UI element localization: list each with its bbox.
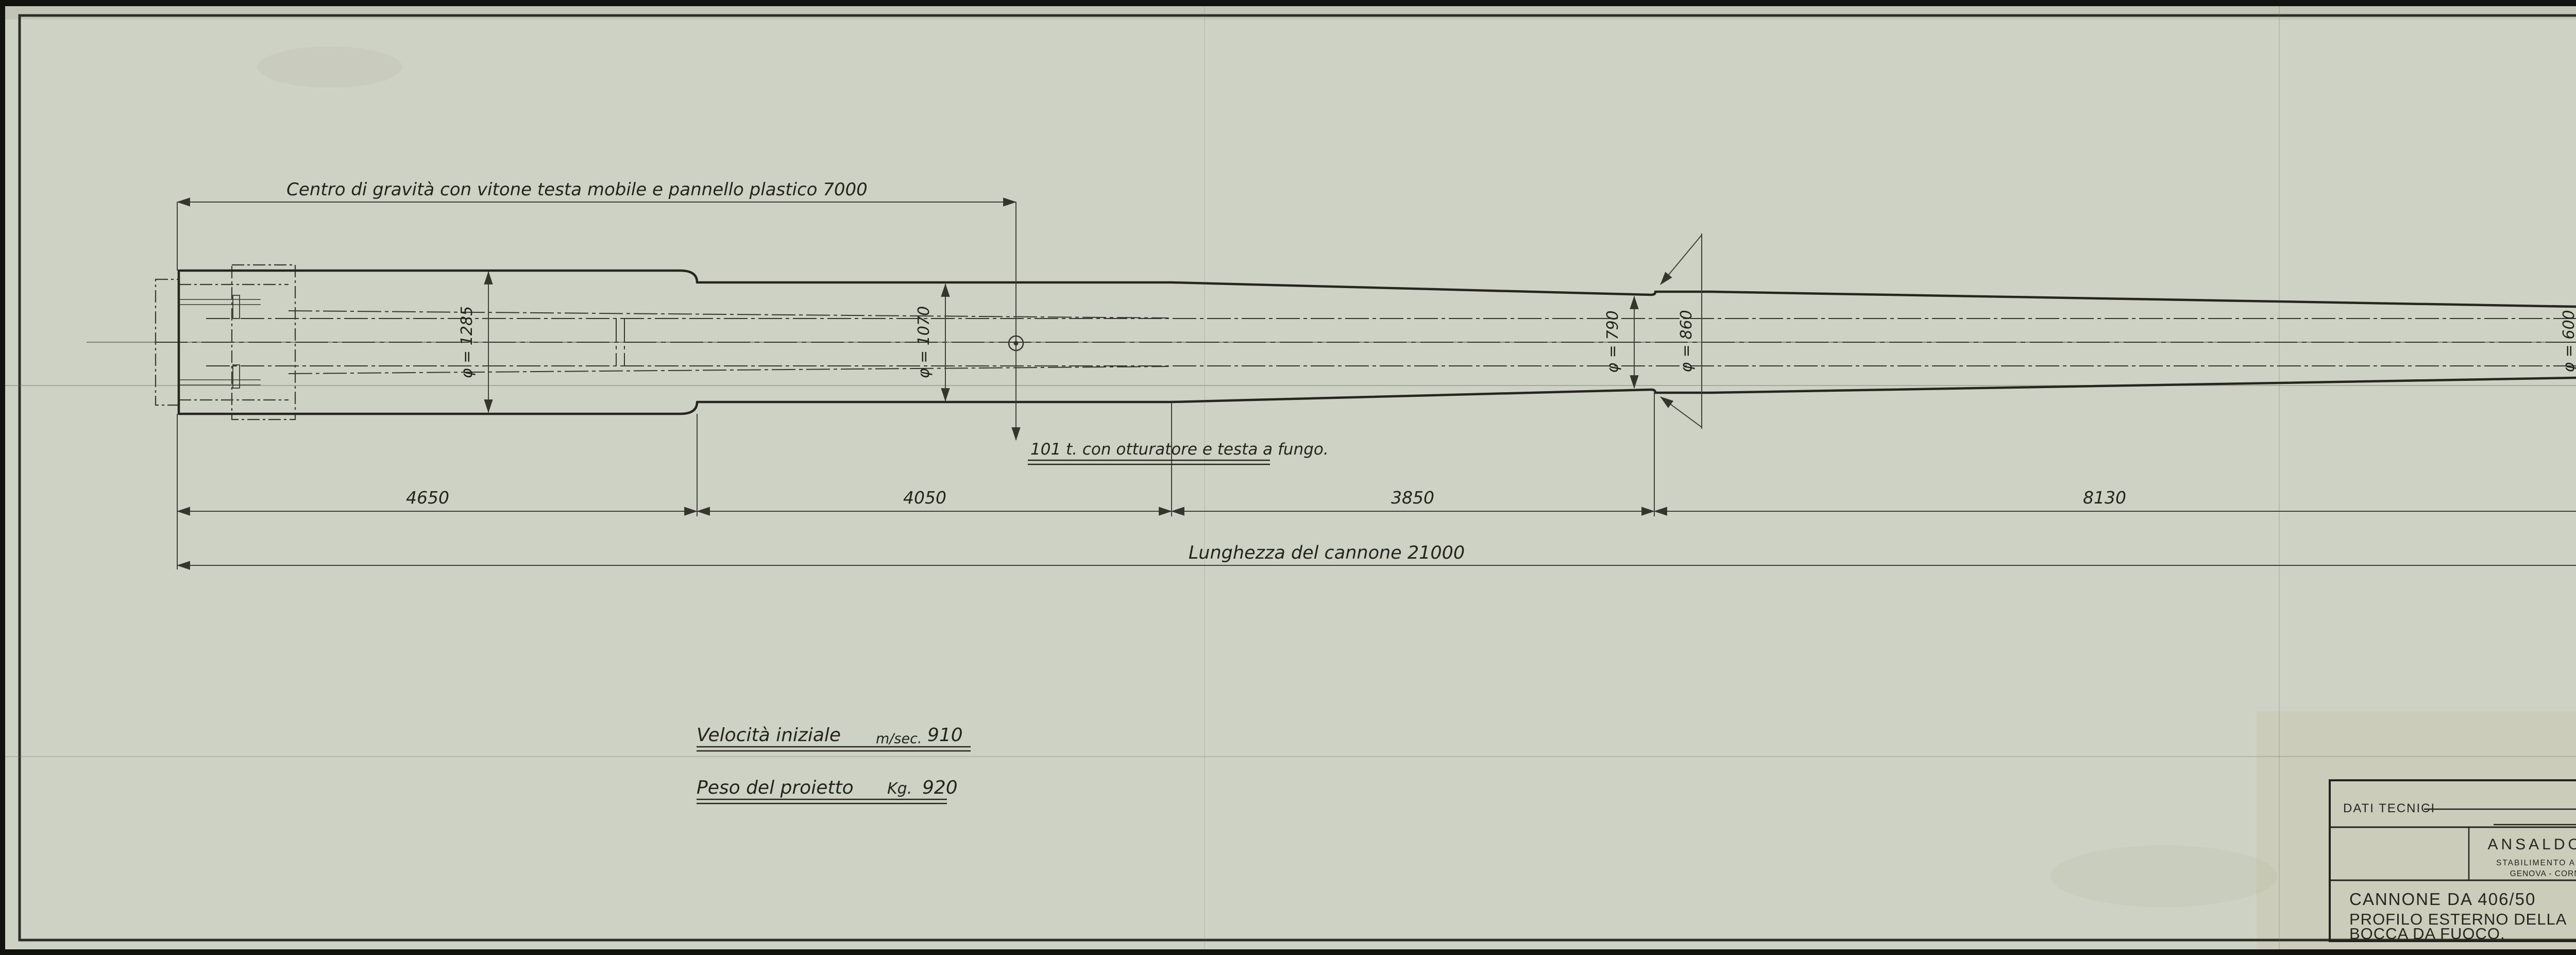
velocity-value: 910 (927, 725, 963, 746)
paper (5, 6, 2576, 949)
dim-label-8130: 8130 (2083, 488, 2126, 508)
projectile-value: 920 (922, 777, 958, 798)
projectile-label: Peso del proietto (697, 777, 854, 798)
velocity-unit: m/sec. (876, 731, 922, 747)
dim-label-3850: 3850 (1391, 488, 1434, 508)
diameter-label-860: φ = 860 (1677, 310, 1696, 372)
velocity-label: Velocità iniziale (697, 725, 841, 746)
paper-stain (2050, 845, 2277, 907)
projectile-unit: Kg. (887, 780, 912, 798)
diameter-label-1070: φ = 1070 (915, 306, 933, 378)
paper-top-shade (5, 6, 2576, 20)
dati-tecnici-label: DATI TECNICI (2343, 801, 2435, 815)
diameter-label-1285: φ = 1285 (458, 306, 476, 378)
scanned-drawing-sheet: Centro di gravità con vitone testa mobil… (0, 0, 2576, 955)
plant-location: GENOVA - CORNIGLIANO (2510, 869, 2576, 878)
overall-length-label: Lunghezza del cannone 21000 (1189, 543, 1465, 563)
dim-label-4650: 4650 (406, 488, 449, 508)
drawing-title-line1: CANNONE DA 406/50 (2349, 890, 2536, 909)
drawing-canvas: Centro di gravità con vitone testa mobil… (0, 0, 2576, 955)
diameter-label-790: φ = 790 (1604, 310, 1622, 373)
paper-stain (258, 46, 402, 88)
cg-dimension-label: Centro di gravità con vitone testa mobil… (286, 179, 868, 200)
cg-weight-note: 101 t. con otturatore e testa a fungo. (1030, 440, 1329, 459)
company-name: ANSALDO S. A. (2487, 836, 2576, 853)
diameter-label-600: φ = 600 (2560, 310, 2576, 372)
drawing-title-line3: BOCCA DA FUOCO. (2349, 925, 2505, 943)
plant-name: STABILIMENTO ARTIGLIERIE (2496, 859, 2576, 867)
dim-label-4050: 4050 (903, 488, 946, 508)
